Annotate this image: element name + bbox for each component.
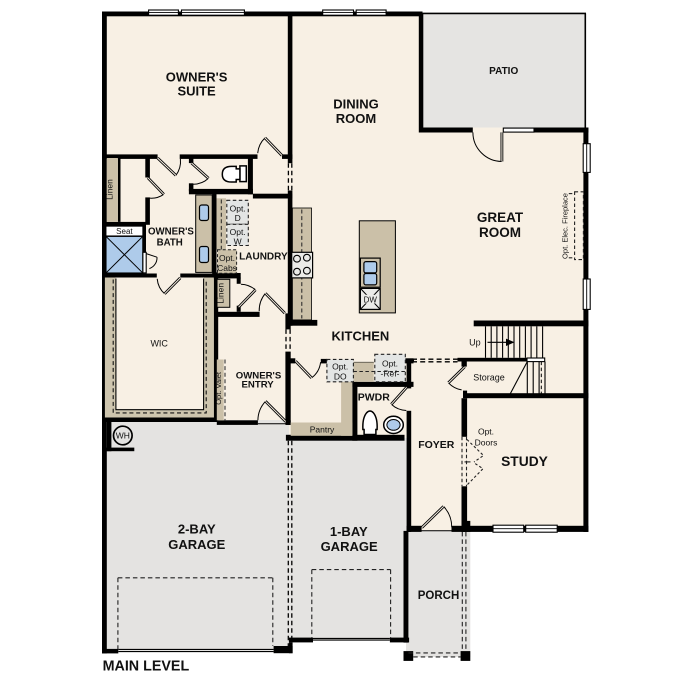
svg-text:ROOM: ROOM [479,225,521,240]
svg-text:Opt. Valet: Opt. Valet [214,371,223,405]
svg-text:OWNER'S: OWNER'S [166,70,228,85]
svg-text:Opt.: Opt. [230,204,246,214]
svg-text:Linen: Linen [215,283,225,304]
svg-text:KITCHEN: KITCHEN [332,329,390,344]
svg-text:Opt. Elec. Fireplace: Opt. Elec. Fireplace [561,193,570,259]
svg-text:BATH: BATH [157,237,183,248]
svg-text:STUDY: STUDY [501,454,548,469]
svg-text:Opt.: Opt. [230,227,246,237]
svg-text:-Ref-: -Ref- [381,368,400,378]
svg-text:DW: DW [364,295,378,304]
svg-text:PWDR: PWDR [358,392,390,404]
svg-text:WH: WH [116,431,130,441]
svg-text:Opt.: Opt. [219,253,235,263]
svg-text:Linen: Linen [104,179,114,200]
svg-text:ROOM: ROOM [336,111,376,126]
svg-text:2-BAY: 2-BAY [178,522,216,537]
svg-text:Opt.: Opt. [332,361,348,371]
svg-text:OWNER'S: OWNER'S [148,226,194,237]
svg-text:Storage: Storage [473,373,505,383]
svg-text:PORCH: PORCH [418,590,460,602]
svg-text:LAUNDRY: LAUNDRY [239,252,288,263]
svg-text:GARAGE: GARAGE [321,539,378,554]
svg-text:Doors: Doors [475,437,498,447]
svg-text:W: W [234,236,242,246]
svg-text:Cabs: Cabs [217,263,237,273]
svg-text:GREAT: GREAT [477,210,524,225]
svg-text:DO: DO [334,371,347,381]
svg-text:SUITE: SUITE [177,84,216,99]
svg-text:WIC: WIC [150,338,168,348]
svg-text:FOYER: FOYER [418,439,455,451]
svg-text:Opt.: Opt. [478,426,494,436]
svg-text:D: D [235,213,241,223]
svg-text:Opt.: Opt. [382,358,398,368]
svg-text:1-BAY: 1-BAY [330,524,368,539]
svg-text:Seat: Seat [116,227,133,236]
svg-text:PATIO: PATIO [489,66,518,77]
svg-text:GARAGE: GARAGE [168,537,225,552]
svg-text:Pantry: Pantry [310,425,335,435]
svg-text:DINING: DINING [333,96,379,111]
svg-text:ENTRY: ENTRY [242,380,275,391]
svg-text:MAIN LEVEL: MAIN LEVEL [103,659,190,675]
svg-text:Up: Up [469,337,481,347]
